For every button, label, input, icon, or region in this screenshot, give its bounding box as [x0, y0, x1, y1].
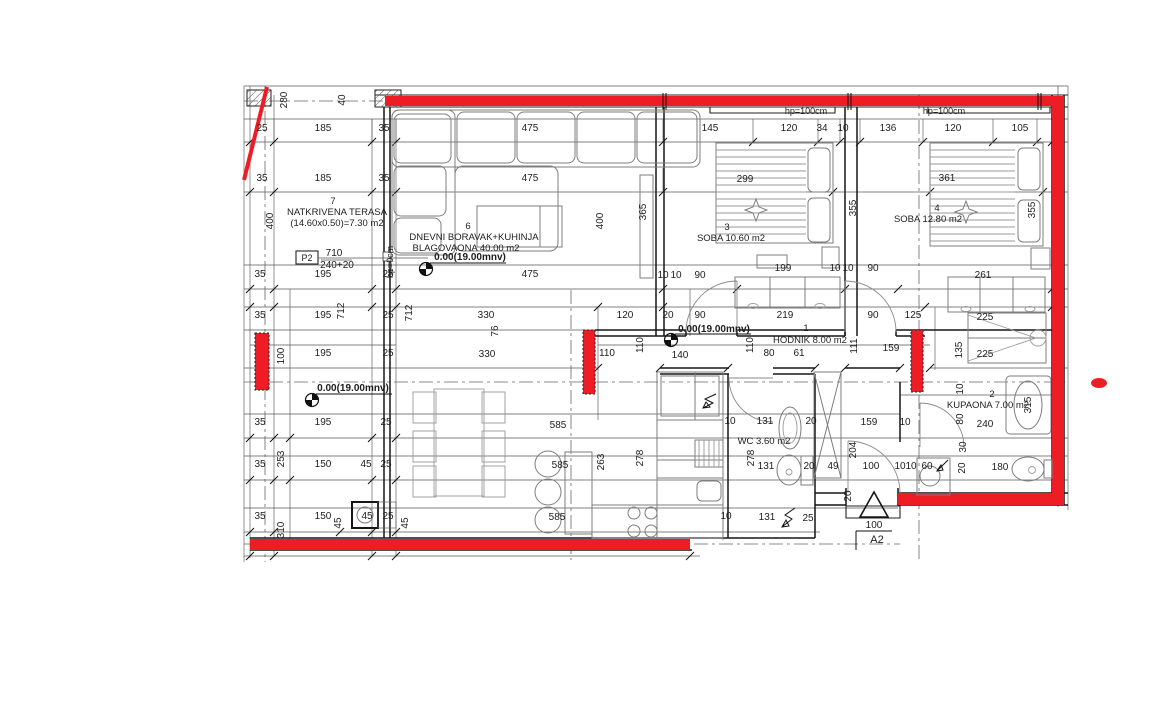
dim-label: 25 [802, 513, 814, 524]
dim-label: 145 [702, 123, 719, 134]
dim-label: 355 [848, 199, 859, 216]
room-label: (14.60x0.50)=7.30 m2 [290, 218, 383, 229]
dim-label: 45 [333, 517, 344, 529]
dim-label: 10 [724, 416, 736, 427]
floor-plan-page: 2518535475145120341013612010535185354752… [0, 0, 1165, 719]
annotation-label: hp=100cm [785, 106, 827, 116]
dim-label: 365 [638, 203, 649, 220]
column-red-middle [583, 330, 595, 394]
dim-label: 120 [781, 123, 798, 134]
dim-label: 35 [254, 511, 266, 522]
dim-label: 10 [657, 270, 669, 281]
dim-label: 278 [635, 449, 646, 466]
dim-label: 136 [880, 123, 897, 134]
dim-label: 45 [361, 511, 373, 522]
dim-label: 261 [975, 270, 992, 281]
dim-label: 40 [337, 94, 348, 106]
dim-label: 475 [522, 269, 539, 280]
dim-label: 361 [939, 173, 956, 184]
dim-label: 712 [336, 302, 347, 319]
dim-label: 185 [315, 123, 332, 134]
dim-label: 10 [899, 417, 911, 428]
dim-label: 712 [404, 304, 415, 321]
dim-label: 120 [617, 310, 634, 321]
wall-top-red [385, 96, 1064, 106]
room-label: KUPAONA 7.00 m2 [947, 400, 1029, 411]
annotation-label: 0.00(19.00mnv) [434, 252, 506, 263]
tv-board [640, 175, 653, 278]
dim-label: 90 [694, 310, 706, 321]
dim-label: 195 [315, 417, 332, 428]
dim-label: 199 [775, 263, 792, 274]
red-dot-mark [1091, 378, 1107, 388]
dim-label: 585 [550, 420, 567, 431]
dim-label: 140 [672, 350, 689, 361]
dim-label: 10 [720, 511, 732, 522]
dining-set [413, 389, 505, 497]
dim-label: 10 [955, 383, 966, 395]
room-label: HODNIK 8.00 m2 [773, 335, 847, 346]
dim-label: 10 [894, 461, 906, 472]
annotation-label: 100 [866, 520, 883, 531]
dim-label: 195 [315, 348, 332, 359]
dim-label: 25 [380, 417, 392, 428]
electric-symbol [782, 508, 795, 527]
annotation-label: 0.00(19.00mnv) [317, 383, 389, 394]
dim-label: 180 [992, 462, 1009, 473]
dim-label: 25 [382, 348, 394, 359]
dim-label: 10 [670, 270, 682, 281]
dim-label: 135 [954, 341, 965, 358]
dim-label: 80 [955, 413, 966, 425]
dim-label: 159 [883, 343, 900, 354]
dim-label: 225 [977, 312, 994, 323]
room-label: 1 [803, 323, 808, 334]
dim-label: 90 [867, 263, 879, 274]
bed-1 [716, 143, 839, 268]
dim-label: 10 [842, 263, 854, 274]
dim-label: 475 [522, 173, 539, 184]
room-label: 7 [330, 196, 335, 207]
dim-label: 204 [848, 441, 859, 458]
dim-label: 49 [827, 461, 839, 472]
dim-label: 150 [315, 459, 332, 470]
dim-label: 25 [256, 123, 268, 134]
annotation-label: 0.00(19.00mnv) [678, 324, 750, 335]
floor-plan-drawing: 2518535475145120341013612010535185354752… [0, 0, 1165, 719]
dim-label: 90 [867, 310, 879, 321]
dim-label: 20 [805, 416, 817, 427]
dim-label: 278 [746, 449, 757, 466]
dim-label: 30 [958, 441, 969, 453]
dim-label: 225 [977, 349, 994, 360]
dim-label: 100 [276, 347, 287, 364]
dim-label: 80 [763, 348, 775, 359]
level-marker [306, 394, 393, 407]
bath-toilet [1012, 457, 1052, 481]
dim-label: 35 [254, 417, 266, 428]
dim-label: 219 [777, 310, 794, 321]
annotation-label: 240+20 [320, 260, 354, 271]
column-red-left [255, 333, 269, 390]
wall-right-red [1052, 96, 1064, 505]
dim-label: 110 [635, 337, 646, 353]
dim-label: 159 [861, 417, 878, 428]
room-label: NATKRIVENA TERASA [287, 207, 388, 218]
room-label: 2 [989, 389, 994, 400]
door-bedroom-2 [845, 281, 896, 332]
dim-label: 45 [360, 459, 372, 470]
dim-label: 20 [662, 310, 674, 321]
dim-label: 20 [957, 462, 968, 474]
dim-label: 35 [256, 173, 268, 184]
dim-label: 35 [254, 269, 266, 280]
dim-label: 20 [803, 461, 815, 472]
dim-label: 35 [254, 310, 266, 321]
dim-label: 330 [479, 349, 496, 360]
dim-label: 253 [276, 450, 287, 467]
dim-label: 585 [552, 460, 569, 471]
dim-label: 400 [595, 212, 606, 229]
dim-label: 35 [254, 459, 266, 470]
kitchen [592, 372, 723, 538]
annotation-label: hp=0cm [385, 246, 395, 278]
dim-label: 90 [694, 270, 706, 281]
room-label: SOBA 12.80 m2 [894, 214, 962, 225]
dim-label: 310 [276, 521, 287, 538]
annotation-label: hp=100cm [923, 106, 965, 116]
annotation-label: 710 [326, 248, 343, 259]
dim-label: 330 [478, 310, 495, 321]
dim-label: 185 [315, 173, 332, 184]
dim-label: 131 [759, 512, 776, 523]
dim-label: 475 [522, 123, 539, 134]
dim-label: 25 [382, 310, 394, 321]
dim-label: 34 [816, 123, 828, 134]
dim-label: 60 [921, 461, 933, 472]
dim-label: 280 [279, 91, 290, 108]
dim-label: 76 [490, 325, 501, 337]
dim-label: 35 [378, 123, 390, 134]
annotation-label: P2 [301, 253, 312, 263]
dim-label: 125 [905, 310, 922, 321]
level-marker [420, 263, 507, 276]
dim-label: 45 [400, 517, 411, 529]
dim-label: 110 [745, 337, 756, 353]
room-label: DNEVNI BORAVAK+KUHINJA [409, 232, 539, 243]
dim-label: 131 [757, 416, 774, 427]
dim-label: 299 [737, 174, 754, 185]
dim-label: 25 [380, 459, 392, 470]
dim-label: 10 [905, 461, 917, 472]
dim-label: 35 [378, 173, 390, 184]
dim-label: 105 [1012, 123, 1029, 134]
dim-label: 61 [793, 348, 805, 359]
dim-label: 120 [945, 123, 962, 134]
room-label: SOBA 10.60 m2 [697, 233, 765, 244]
dim-label: 355 [1027, 201, 1038, 218]
nightstand [1031, 248, 1050, 269]
dim-label: 111 [849, 338, 860, 354]
dim-label: 10 [837, 123, 849, 134]
column-red-right [911, 330, 923, 392]
dim-label: 150 [315, 511, 332, 522]
room-label: 6 [465, 221, 470, 232]
room-label: 3 [724, 222, 729, 233]
decor-star [745, 199, 767, 221]
dim-label: 240 [977, 419, 994, 430]
dresser-bedroom-1 [735, 277, 840, 309]
dim-label: 110 [599, 348, 615, 359]
dim-label: 263 [596, 453, 607, 470]
room-label: 4 [934, 203, 939, 214]
dim-label: 585 [549, 512, 566, 523]
room-label: WC 3.60 m2 [738, 436, 791, 447]
dim-label: 195 [315, 310, 332, 321]
dim-label: 20 [843, 490, 854, 502]
annotation-label: A2 [870, 534, 883, 546]
wall-bottom-red [250, 539, 690, 550]
dim-label: 100 [863, 461, 880, 472]
dim-label: 131 [758, 461, 775, 472]
dim-label: 25 [382, 511, 394, 522]
dim-label: 10 [829, 263, 841, 274]
dim-label: 400 [265, 212, 276, 229]
